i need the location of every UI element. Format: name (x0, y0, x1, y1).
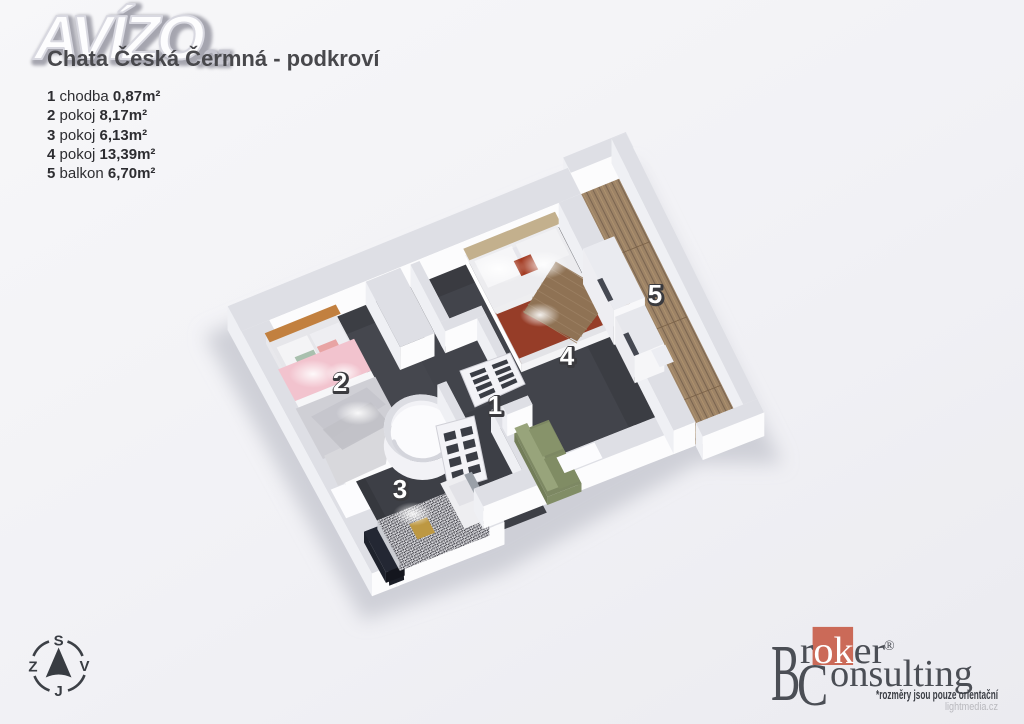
svg-text:2: 2 (333, 367, 347, 397)
svg-text:J: J (54, 683, 62, 700)
svg-text:3: 3 (393, 474, 407, 504)
svg-text:1: 1 (488, 390, 502, 420)
svg-text:Z: Z (28, 659, 37, 676)
svg-text:5: 5 (648, 279, 662, 309)
svg-text:lightmedia.cz: lightmedia.cz (945, 701, 998, 713)
svg-text:C: C (797, 651, 828, 718)
svg-text:*rozměry jsou pouze orientační: *rozměry jsou pouze orientační (876, 687, 998, 702)
svg-text:4: 4 (560, 341, 575, 371)
svg-text:B: B (771, 628, 800, 717)
svg-text:®: ® (884, 639, 895, 654)
svg-text:V: V (79, 658, 89, 675)
svg-text:S: S (54, 633, 64, 650)
